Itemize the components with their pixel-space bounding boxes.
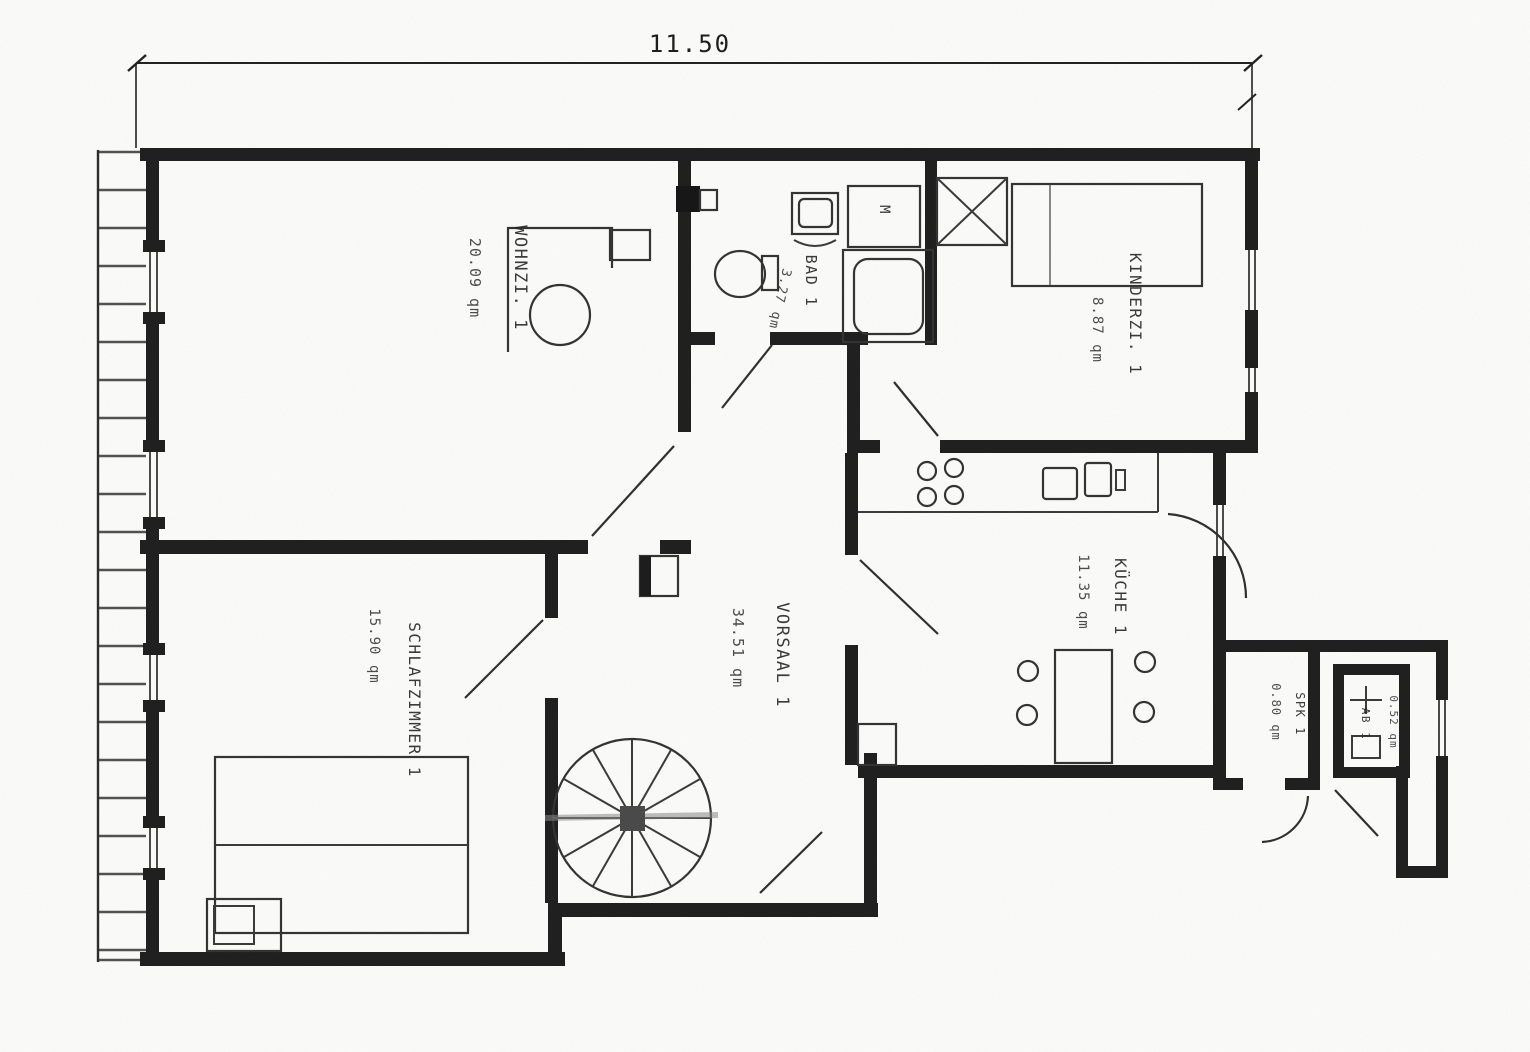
area-label-bad: 3.27 qm <box>765 267 794 331</box>
balcony-hatching <box>98 150 146 962</box>
room-label-ab: AB 1 <box>1359 708 1372 741</box>
room-label-wohnzimmer: WOHNZI. 1 <box>510 225 530 331</box>
kitchen-sink <box>1043 463 1125 499</box>
kitchen-table <box>1017 650 1155 763</box>
dimension-line: 11.50 <box>128 30 1262 148</box>
room-label-bad: BAD 1 <box>802 255 820 308</box>
room-label-spk: SPK 1 <box>1293 692 1307 736</box>
washing-machine <box>848 186 920 247</box>
area-label-spk: 0.80 qm <box>1269 683 1283 741</box>
floor-plan-scan: 11.50 <box>0 0 1530 1052</box>
chair <box>1135 652 1155 672</box>
schlafzimmer-furniture <box>207 757 468 951</box>
chair <box>1018 661 1038 681</box>
chair <box>1017 705 1037 725</box>
chair <box>1134 702 1154 722</box>
area-label-vorsaal: 34.51 qm <box>729 608 747 688</box>
dimension-label: 11.50 <box>649 30 731 58</box>
child-bed <box>1012 184 1202 286</box>
hall-features <box>545 556 718 897</box>
round-table <box>530 285 590 345</box>
room-label-schlafzimmer: SCHLAFZIMMER 1 <box>405 622 424 778</box>
stove <box>918 459 963 506</box>
interior-walls <box>140 148 1410 903</box>
floor-plan-drawing: 11.50 <box>0 0 1530 1052</box>
kinderzimmer-furniture <box>1012 184 1202 286</box>
spiral-staircase <box>545 739 718 897</box>
area-label-kinderzimmer: 8.87 qm <box>1089 297 1105 363</box>
shaft <box>937 178 1007 245</box>
washing-machine-label: M <box>876 205 892 215</box>
area-label-wohnzimmer: 20.09 qm <box>466 238 484 318</box>
area-label-ab: 0.52 qm <box>1387 695 1400 748</box>
room-labels: WOHNZI. 1 20.09 qm BAD 1 3.27 qm KINDERZ… <box>366 225 1400 778</box>
room-label-kueche: KÜCHE 1 <box>1111 558 1130 636</box>
room-label-kinderzimmer: KINDERZI. 1 <box>1126 253 1145 375</box>
door-swings <box>465 345 1378 893</box>
area-label-schlafzimmer: 15.90 qm <box>366 608 382 683</box>
area-label-kueche: 11.35 qm <box>1075 554 1091 629</box>
chimney <box>676 186 700 212</box>
toilet <box>715 251 765 297</box>
bathroom-fixtures: M <box>676 178 1007 342</box>
room-label-vorsaal: VORSAAL 1 <box>772 602 792 708</box>
